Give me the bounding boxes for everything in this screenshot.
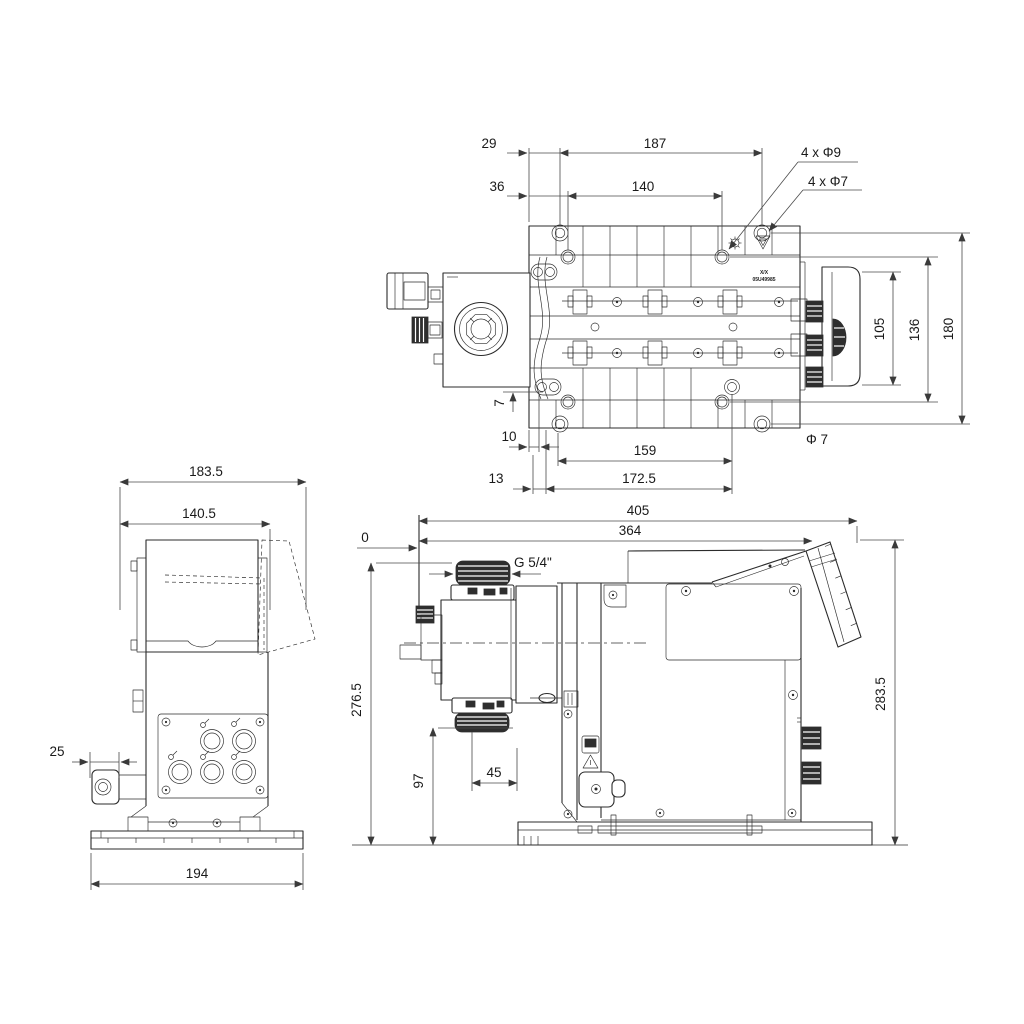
dim-top-140: 140 [632,179,655,194]
pump-head-top [387,273,530,387]
adjust-knob-top [412,317,442,343]
dim-front-25: 25 [49,744,64,759]
mounting-plate: X/X 05U49985 [529,225,807,432]
top-view: X/X 05U49985 [387,136,970,494]
dim-top-13: 13 [488,471,503,486]
dim-side-405: 405 [627,503,650,518]
dim-top-105: 105 [872,318,887,341]
drawing-page: X/X 05U49985 [0,0,1024,1024]
plate-marking-line2: 05U49985 [752,277,775,283]
dim-top-29: 29 [481,136,496,151]
dim-front-183-5: 183.5 [189,464,223,479]
technical-drawing: X/X 05U49985 [0,0,1024,1024]
callout-thread-g54: G 5/4" [514,555,552,570]
callout-dia7: Φ 7 [806,432,828,447]
dim-side-0: 0 [361,530,369,545]
dim-top-7: 7 [492,399,507,407]
dim-side-276-5: 276.5 [349,683,364,717]
dim-front-194: 194 [186,866,209,881]
side-view-dimensions: 405 364 0 G 5/4" 276.5 283.5 97 45 [349,503,904,845]
pump-body-side [518,542,872,845]
cable-gland-side [400,606,442,684]
plate-marking-line1: X/X [760,270,769,276]
side-view: 405 364 0 G 5/4" 276.5 283.5 97 45 [349,503,908,845]
dosing-head-side [400,515,650,732]
bracket-knobs [806,301,823,387]
dim-top-180: 180 [941,318,956,341]
dim-side-97: 97 [411,773,426,788]
control-panel-wedge [712,542,861,647]
dim-front-140-5: 140.5 [182,506,216,521]
dim-side-283-5: 283.5 [873,677,888,711]
dim-top-36: 36 [489,179,504,194]
front-view: 183.5 140.5 25 194 [49,464,315,890]
callout-holes-phi7: 4 x Φ7 [808,174,848,189]
callout-holes-phi9: 4 x Φ9 [801,145,841,160]
dim-top-172-5: 172.5 [622,471,656,486]
panel-edge-hatch [825,544,857,626]
dim-top-136: 136 [907,319,922,342]
front-terminal-box [92,652,268,831]
cable-connectors [169,718,256,784]
dim-top-159: 159 [634,443,657,458]
front-housing [131,540,267,652]
clamp-bracket-top [800,262,860,390]
motor-gland-top [387,273,428,309]
front-base-plate [91,831,303,849]
dim-top-187: 187 [644,136,667,151]
dim-top-10: 10 [501,429,516,444]
dim-side-45: 45 [486,765,501,780]
dim-side-364: 364 [619,523,642,538]
